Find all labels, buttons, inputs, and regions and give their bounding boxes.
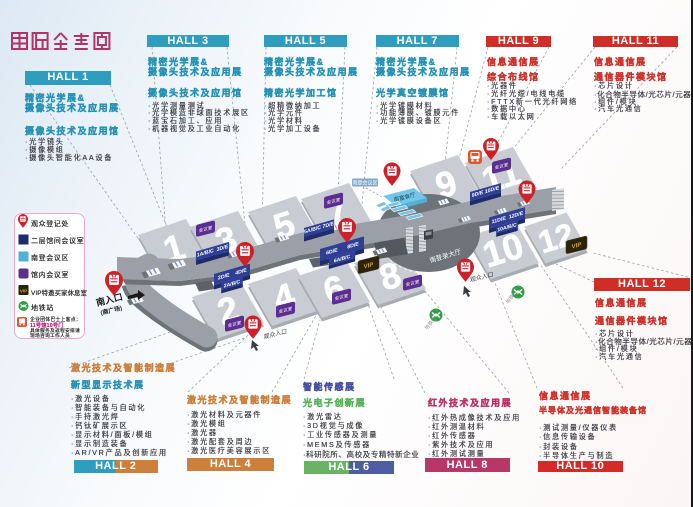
svg-text:VIP: VIP	[20, 289, 27, 294]
